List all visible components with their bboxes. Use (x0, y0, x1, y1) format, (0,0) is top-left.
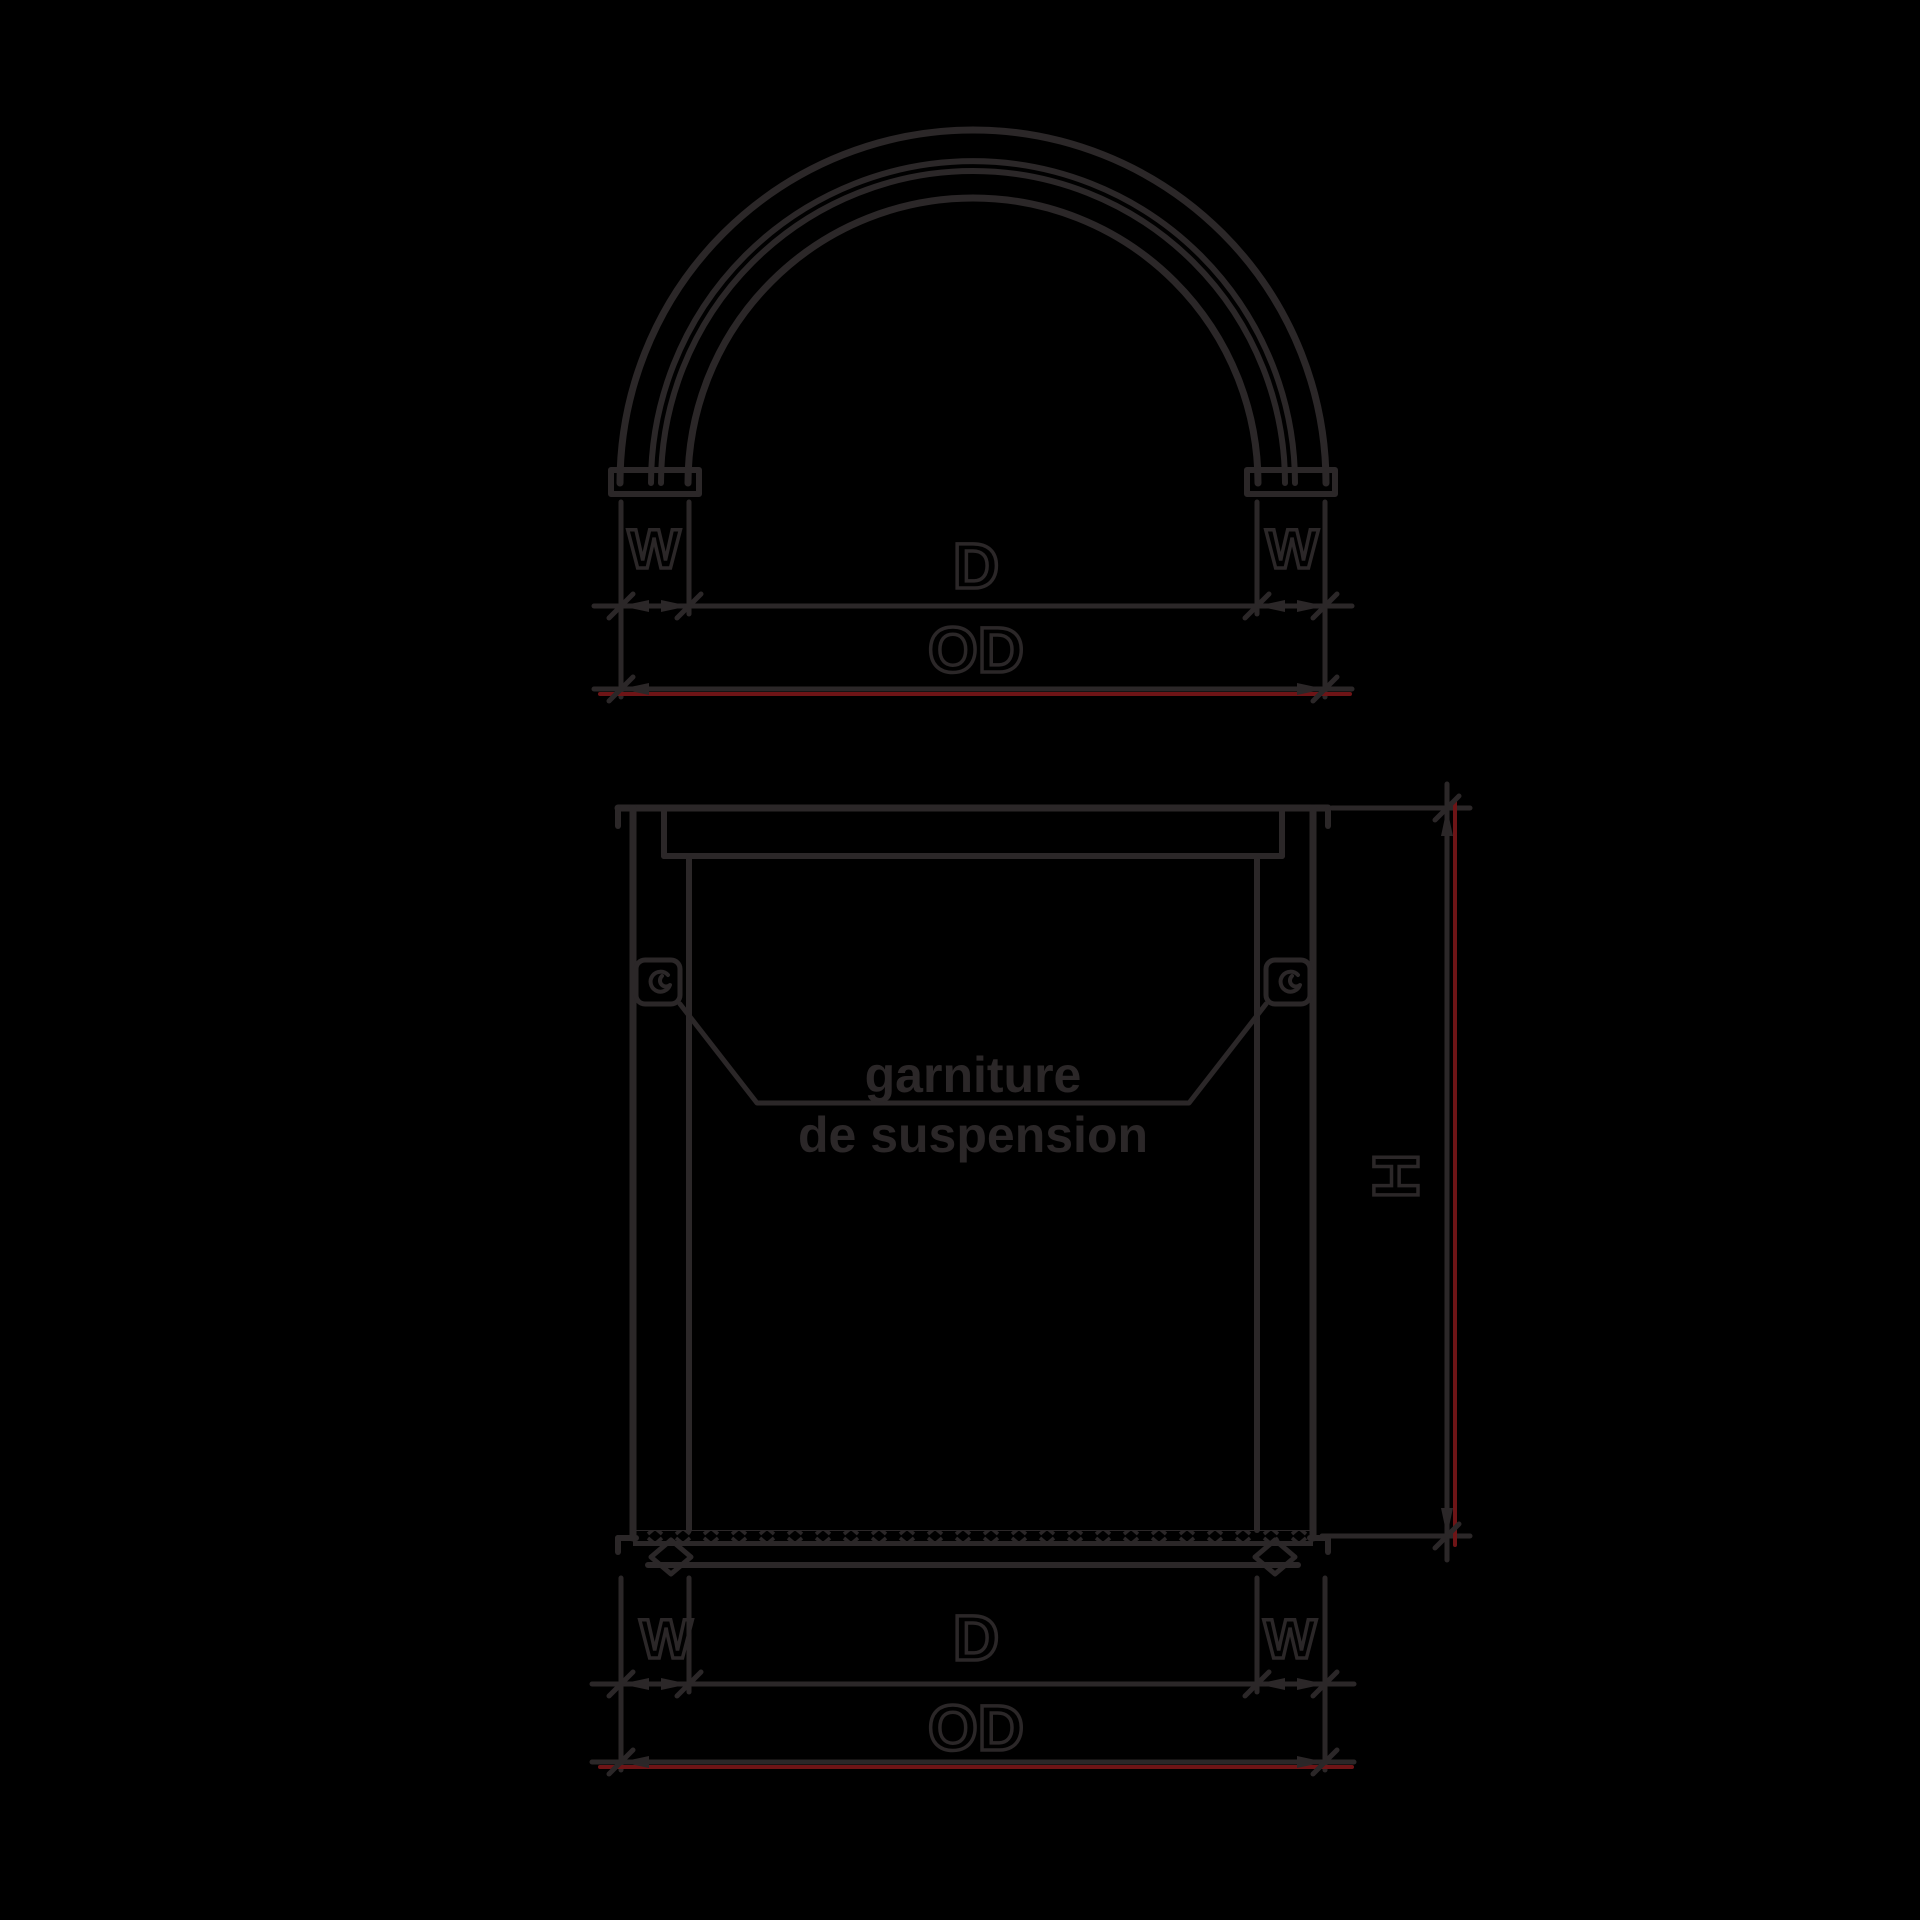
clip-hook-icon (1281, 972, 1300, 992)
label-od: OD (928, 614, 1024, 686)
front-view: garniture de suspension (592, 784, 1470, 1774)
label-w-right: W (1266, 517, 1319, 580)
hanger-clip-right (1266, 960, 1310, 1004)
hanger-clip-left (636, 960, 680, 1004)
arch-end-flanges (611, 470, 1335, 494)
body-top-edge (618, 808, 1328, 856)
top-view-labels: W D W OD (628, 517, 1319, 686)
body-bottom-edge (618, 1530, 1328, 1574)
crimped-seam (633, 1530, 1313, 1546)
clip-hook-icon (651, 972, 670, 992)
label-w-left: W (628, 517, 681, 580)
technical-drawing-canvas: W D W OD (0, 0, 1920, 1920)
label-od: OD (928, 1692, 1024, 1764)
arch-ring (620, 130, 1326, 483)
body-walls (633, 808, 1313, 1538)
duct-dimension-diagram: W D W OD (0, 0, 1920, 1920)
label-d: D (953, 1602, 999, 1674)
label-w-right: W (1264, 1607, 1317, 1670)
label-h: H (1360, 1153, 1432, 1199)
label-w-left: W (640, 1607, 693, 1670)
height-dimension: H (1322, 784, 1470, 1560)
label-d: D (953, 530, 999, 602)
top-view: W D W OD (594, 130, 1352, 701)
annotation-line1: garniture (865, 1047, 1082, 1103)
clip-body (636, 960, 680, 1004)
clip-body (1266, 960, 1310, 1004)
annotation-line2: de suspension (798, 1107, 1148, 1163)
